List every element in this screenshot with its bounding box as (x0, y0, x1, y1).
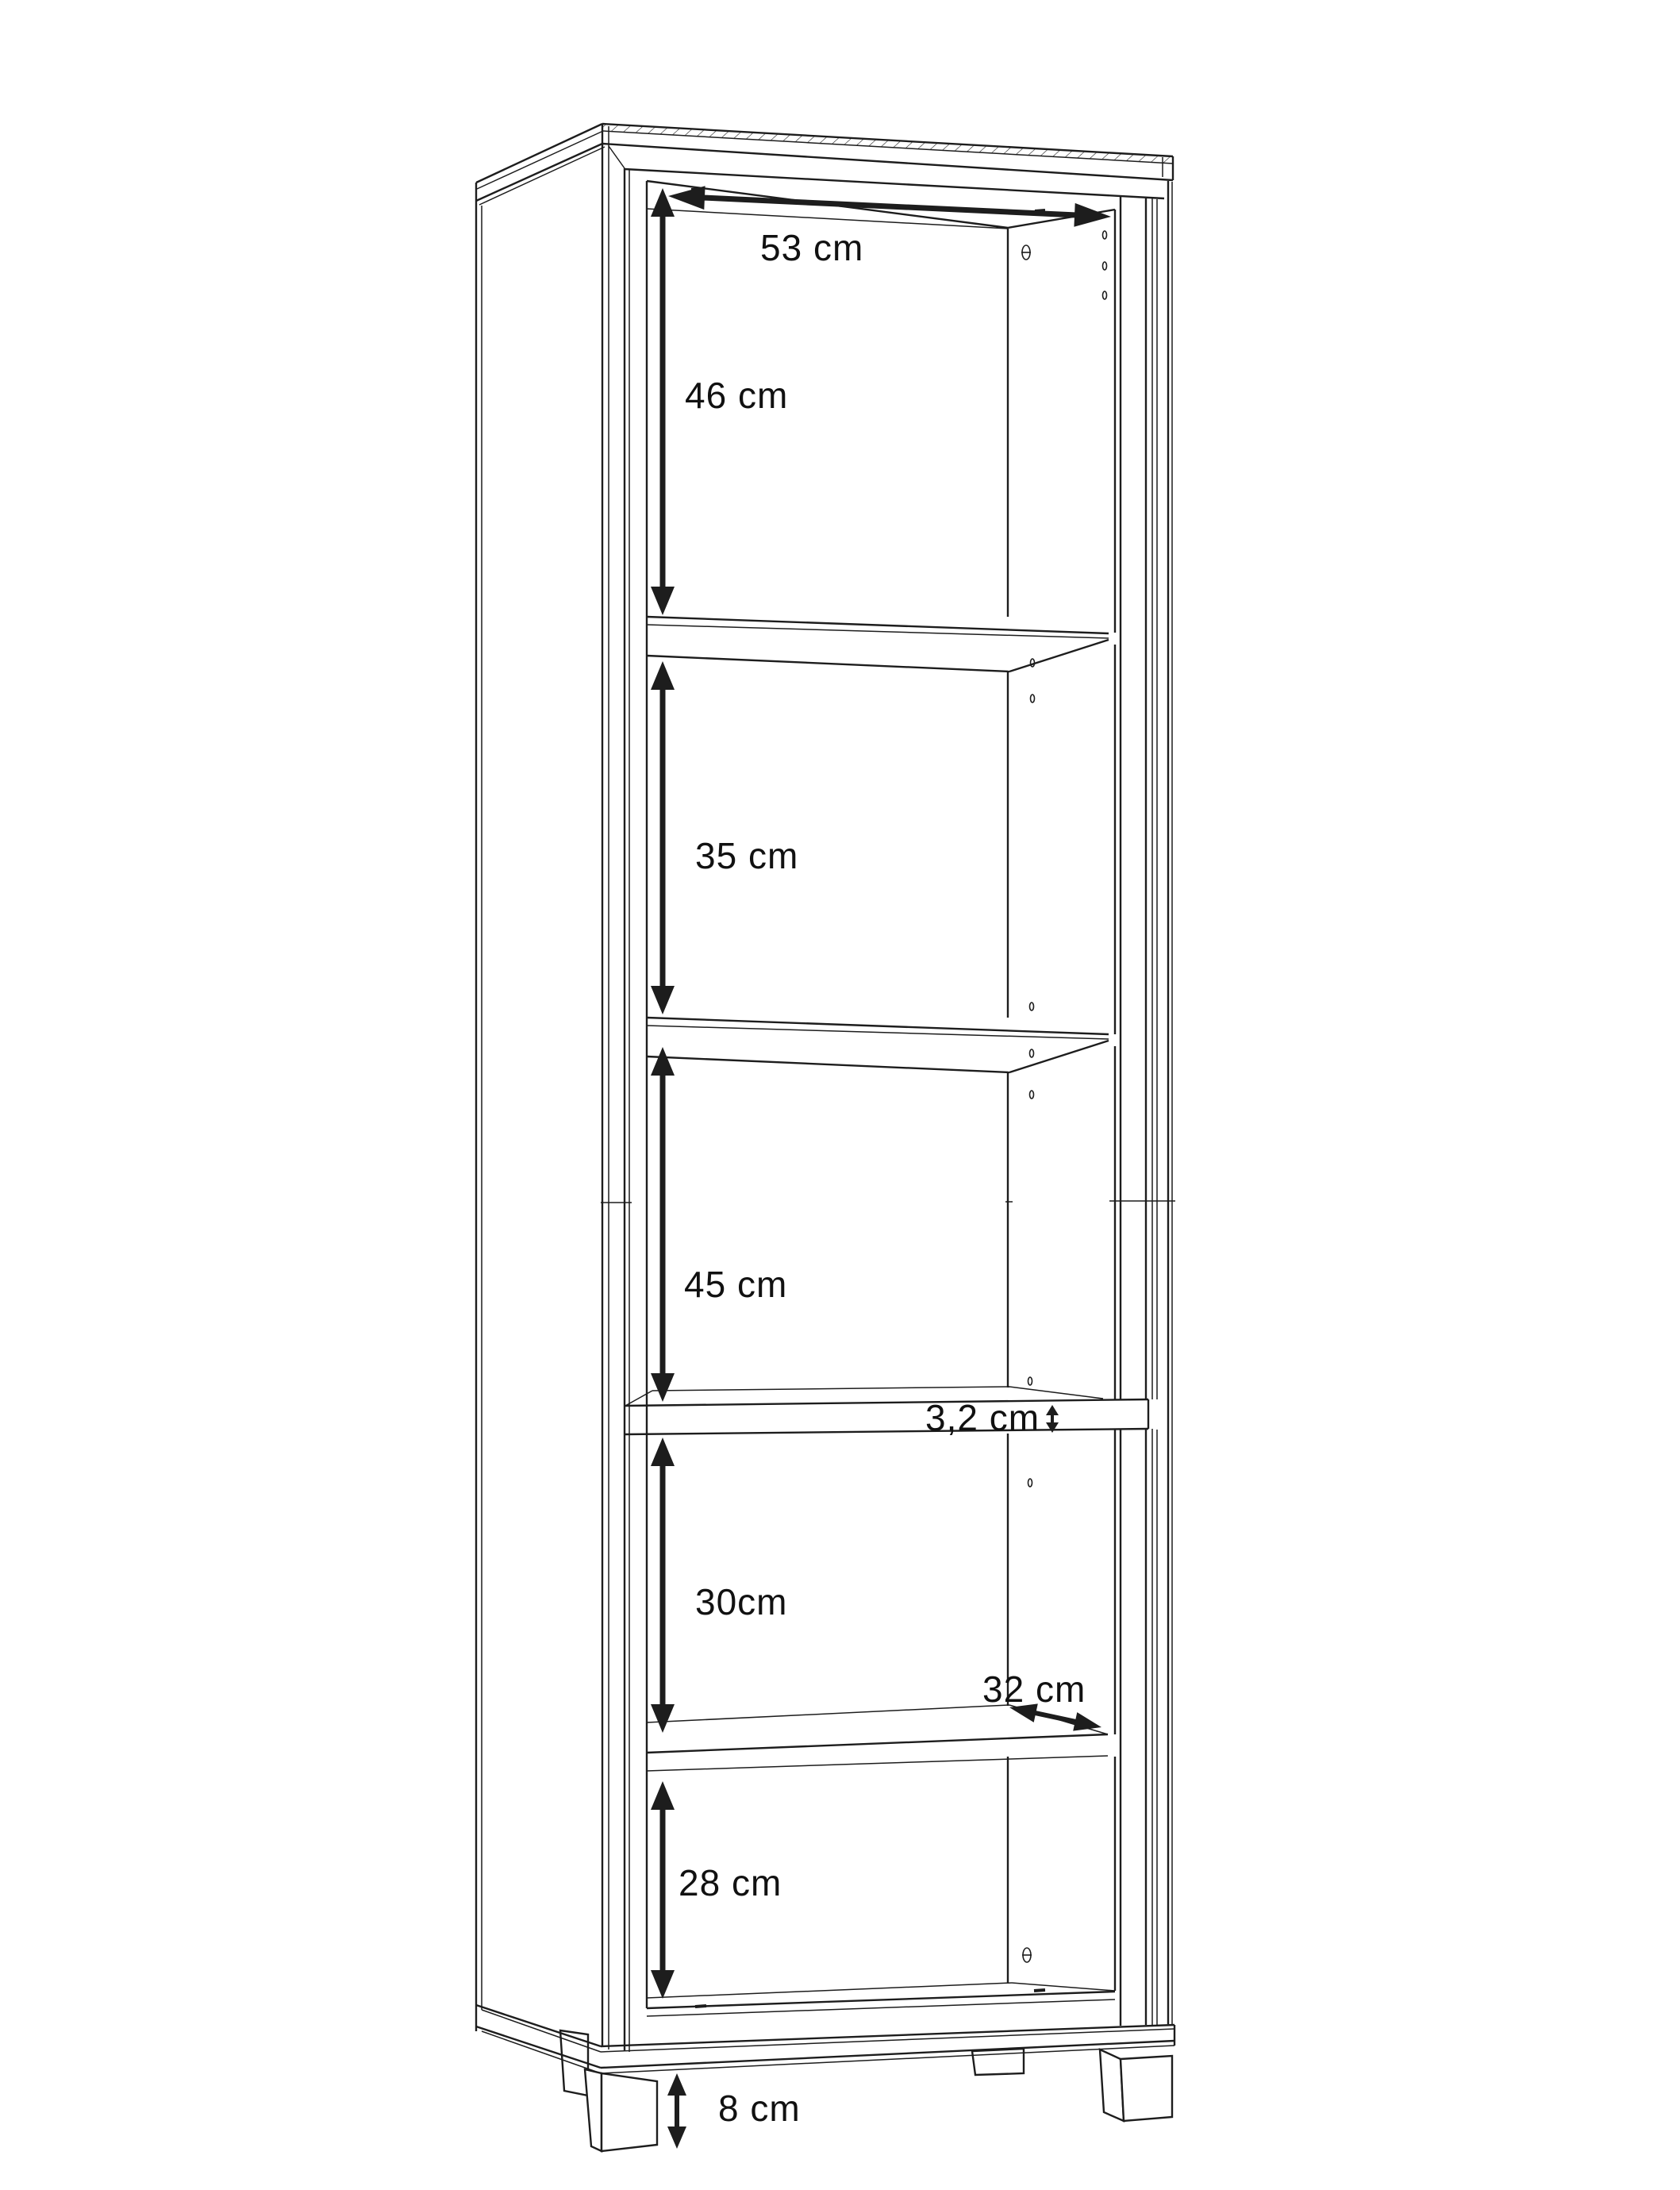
dim-arrow-thickness-3-2 (1046, 1405, 1059, 1433)
small-pin-holes (1028, 231, 1107, 1487)
dimension-arrows (651, 186, 1111, 2149)
dim-label-section-1-height: 46 cm (685, 376, 788, 414)
dim-label-section-3-height: 45 cm (684, 1265, 787, 1303)
dim-arrow-section-35 (651, 661, 675, 1014)
dim-label-shelf-depth: 32 cm (982, 1670, 1086, 1708)
frame-right (1008, 181, 1172, 2026)
top-panel (476, 124, 1173, 205)
dim-arrow-section-46 (651, 188, 675, 615)
dim-arrow-leg-8 (667, 2073, 686, 2149)
shelf-1 (647, 617, 1109, 672)
dim-label-section-5-height: 28 cm (679, 1864, 782, 1902)
dim-label-leg-height: 8 cm (718, 2089, 801, 2127)
dim-label-divider-thickness: 3,2 cm (925, 1399, 1040, 1437)
dim-label-interior-width: 53 cm (760, 229, 863, 267)
cabinet-dimension-diagram: 53 cm 46 cm 35 cm 45 cm 3,2 cm 30cm 32 c… (0, 0, 1680, 2190)
dim-label-section-2-height: 35 cm (695, 837, 798, 875)
side-panel-left (476, 144, 647, 2052)
dim-arrow-section-30 (651, 1438, 675, 1733)
bottom-panel (647, 1983, 1115, 2016)
cabinet-line-drawing (0, 0, 1680, 2190)
dim-label-section-4-height: 30cm (695, 1583, 787, 1621)
shelf-2 (647, 1018, 1109, 1072)
dim-arrow-section-45 (651, 1047, 675, 1402)
dim-arrow-section-28 (651, 1781, 675, 1999)
carcass-seam (601, 1201, 1175, 1203)
fixed-divider-shelf (625, 1387, 1148, 1434)
